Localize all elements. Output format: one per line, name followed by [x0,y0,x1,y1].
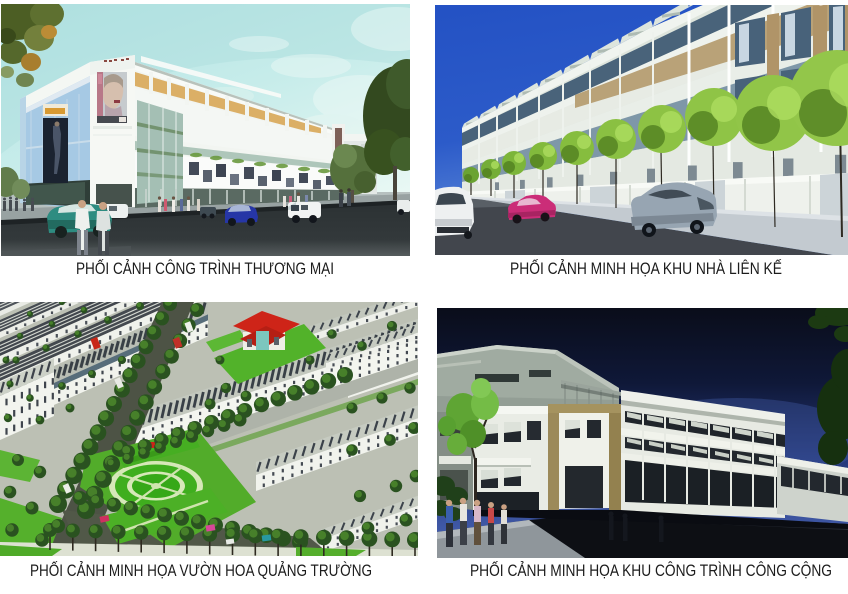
svg-text:PHỐI CẢNH CÔNG TRÌNH THƯƠNG MẠ: PHỐI CẢNH CÔNG TRÌNH THƯƠNG MẠI [76,258,334,278]
svg-text:PHỐI CẢNH MINH HỌA KHU NHÀ LIÊ: PHỐI CẢNH MINH HỌA KHU NHÀ LIÊN KẾ [510,258,782,278]
svg-text:PHỐI CẢNH MINH HỌA VƯỜN HOA QU: PHỐI CẢNH MINH HỌA VƯỜN HOA QUẢNG TRƯỜNG [30,560,372,580]
svg-text:PHỐI CẢNH MINH HỌA KHU CÔNG TR: PHỐI CẢNH MINH HỌA KHU CÔNG TRÌNH CÔNG C… [470,560,832,580]
